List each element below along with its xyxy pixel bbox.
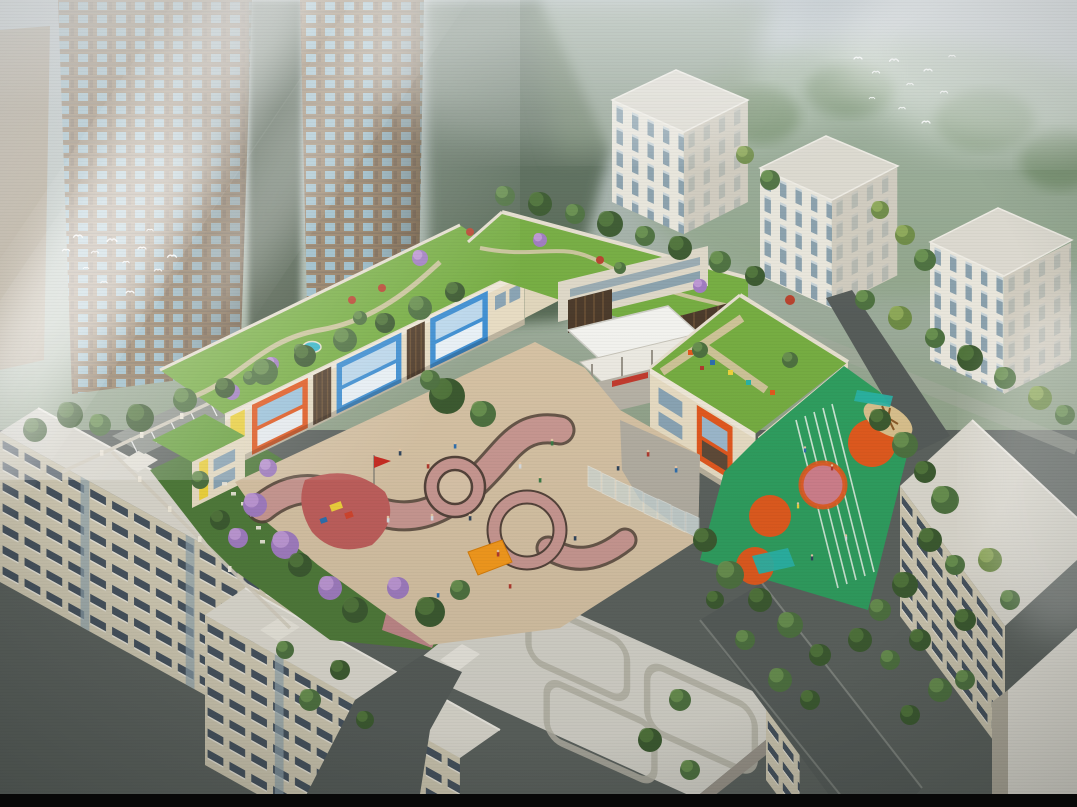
rendering-canvas [0, 0, 1077, 807]
letterbox-bar [0, 794, 1077, 807]
vignette [0, 0, 1077, 807]
atmosphere [0, 0, 1077, 807]
